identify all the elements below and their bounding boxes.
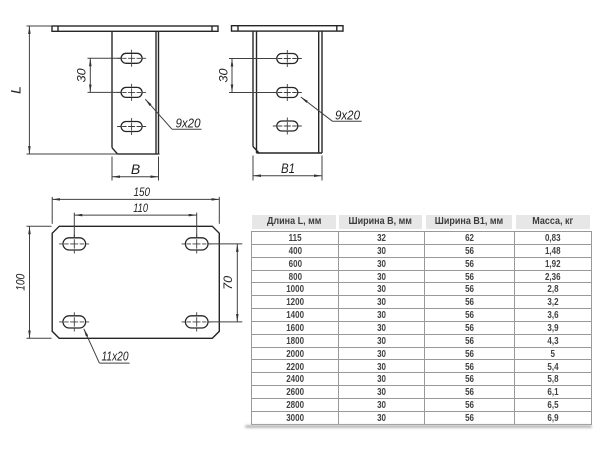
svg-text:11x20: 11x20	[102, 349, 130, 364]
svg-text:B: B	[131, 161, 140, 177]
svg-text:100: 100	[13, 274, 27, 291]
svg-text:9x20: 9x20	[176, 116, 202, 131]
svg-text:70: 70	[221, 276, 235, 290]
svg-text:30: 30	[217, 68, 231, 82]
svg-text:30: 30	[74, 68, 88, 82]
svg-text:B1: B1	[281, 160, 295, 176]
svg-text:150: 150	[134, 185, 151, 199]
svg-text:L: L	[8, 86, 24, 94]
svg-text:9x20: 9x20	[335, 108, 361, 123]
svg-text:110: 110	[133, 201, 148, 215]
